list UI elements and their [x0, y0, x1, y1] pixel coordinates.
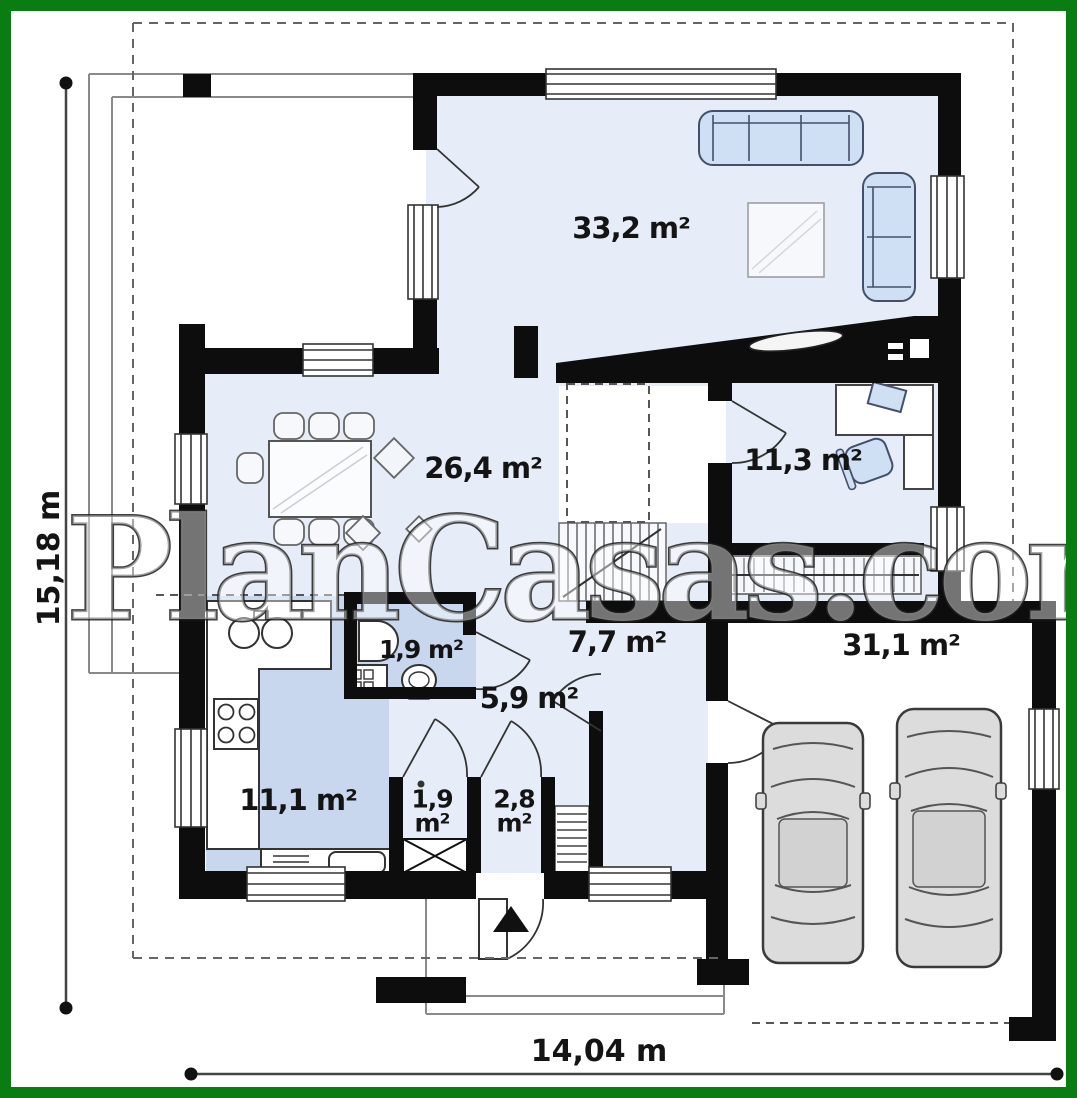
- floor-plan-page: PlanCasas.com 33,2 m² 26,4 m² 11,3 m² 1,…: [0, 0, 1077, 1098]
- window-icon: [546, 69, 776, 99]
- floor-plan-drawing: PlanCasas.com: [11, 11, 1077, 1098]
- car-icon: [890, 709, 1006, 967]
- dining-room-area-label: 26,4 m²: [424, 455, 542, 483]
- window-icon: [247, 867, 345, 901]
- window-icon: [175, 729, 207, 827]
- porch-outline: [426, 899, 724, 1014]
- window-icon: [303, 344, 373, 376]
- office-area-label: 11,3 m²: [744, 447, 862, 475]
- window-icon: [589, 867, 671, 901]
- stairs-lower-icon: [555, 806, 589, 873]
- wc-area-label: 1,9 m²: [379, 638, 463, 662]
- closet-area-label: 1,9 m²: [411, 787, 452, 835]
- window-icon: [408, 205, 438, 299]
- kitchen-area-label: 11,1 m²: [239, 787, 357, 815]
- vestibule-area-label: 7,7 m²: [568, 629, 666, 657]
- sofa-3-seat-icon: [699, 111, 863, 165]
- height-dimension-label: 15,18 m: [36, 490, 65, 627]
- x-wardrobe-icon: [403, 839, 467, 873]
- living-room-area-label: 33,2 m²: [572, 215, 690, 243]
- porch-step: [376, 977, 466, 1003]
- rug-icon: [748, 203, 824, 277]
- window-icon: [1029, 709, 1059, 789]
- car-icon: [756, 723, 870, 963]
- width-dimension-label: 14,04 m: [531, 1038, 668, 1067]
- garage-area-label: 31,1 m²: [842, 632, 960, 660]
- pantry-area-label: 2,8 m²: [493, 787, 534, 835]
- hall-area-label: 5,9 m²: [480, 685, 578, 713]
- window-icon: [931, 176, 964, 278]
- sofa-2-seat-icon: [863, 173, 915, 301]
